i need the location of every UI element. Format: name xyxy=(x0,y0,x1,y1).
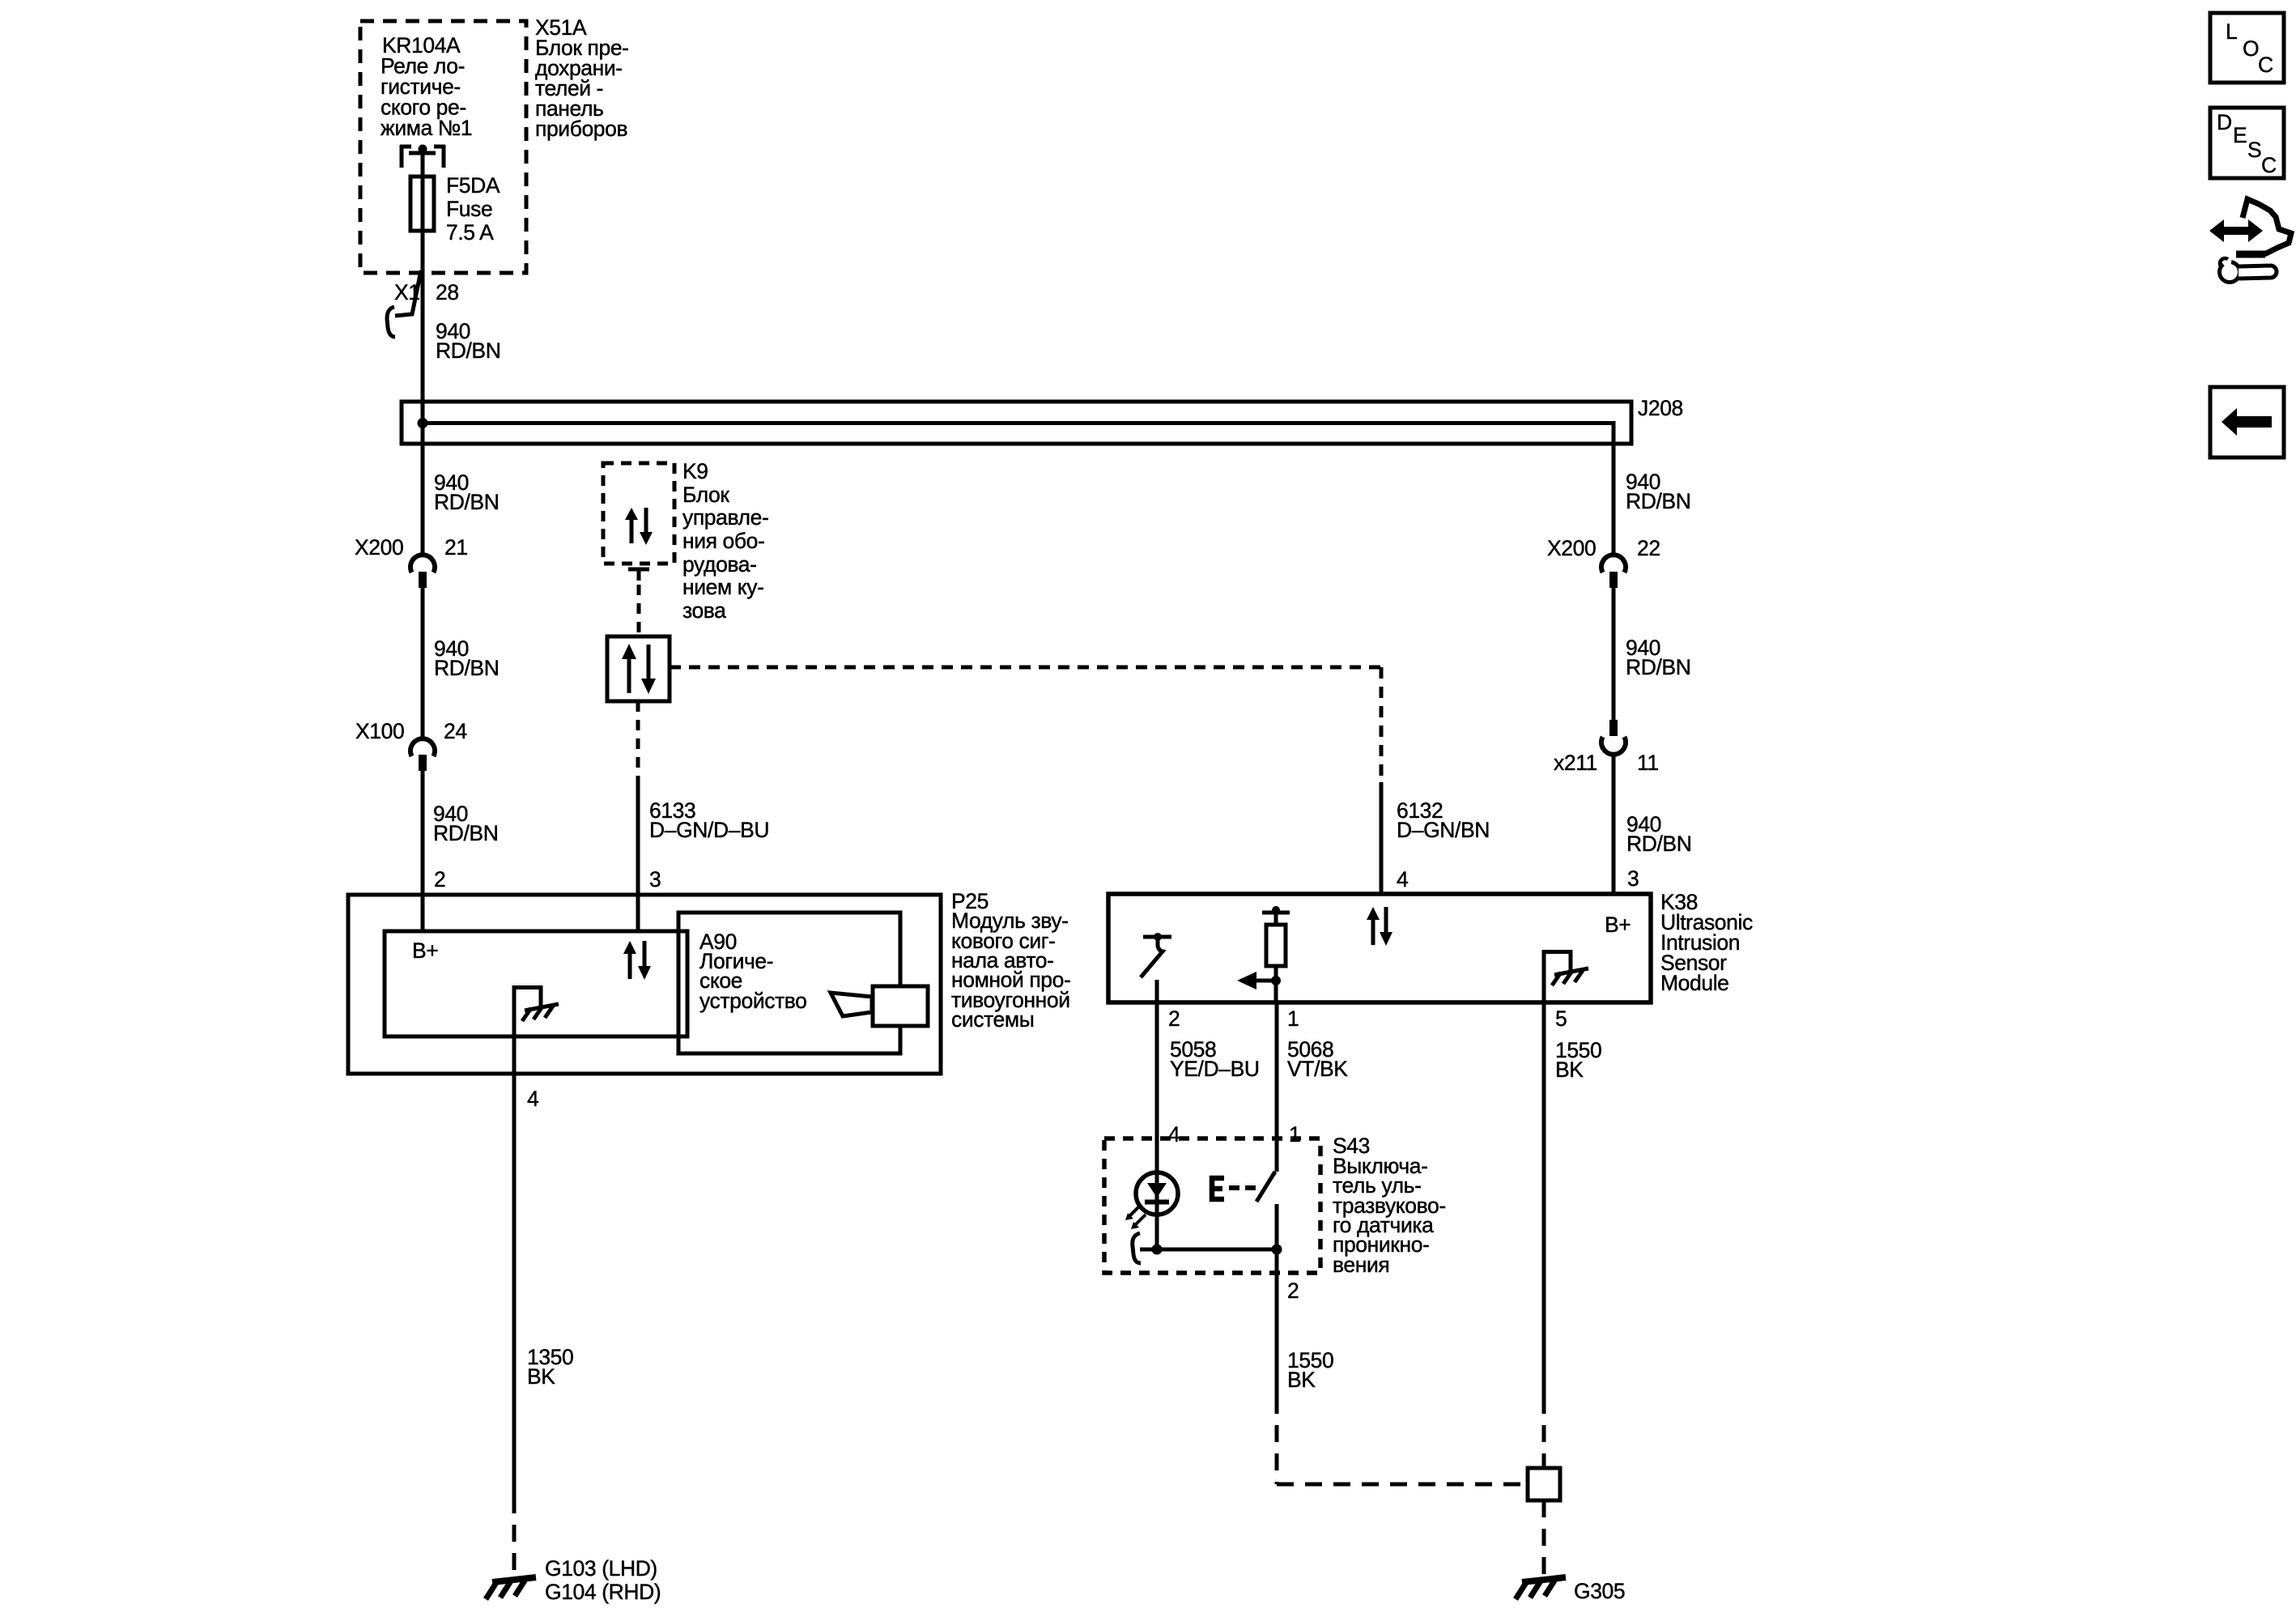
svg-text:O: O xyxy=(2243,36,2259,61)
svg-text:E: E xyxy=(2233,123,2247,147)
svg-text:4: 4 xyxy=(1397,867,1408,891)
svg-text:системы: системы xyxy=(951,1007,1034,1032)
svg-text:нием ку-: нием ку- xyxy=(682,575,764,599)
svg-text:4: 4 xyxy=(1168,1122,1180,1147)
svg-text:G103 (LHD): G103 (LHD) xyxy=(545,1556,657,1581)
svg-text:x211: x211 xyxy=(1554,751,1597,775)
svg-text:RD/BN: RD/BN xyxy=(1626,655,1690,679)
svg-text:L: L xyxy=(2226,19,2237,44)
svg-text:RD/BN: RD/BN xyxy=(433,821,498,845)
svg-text:5: 5 xyxy=(1555,1006,1567,1031)
svg-text:B+: B+ xyxy=(1605,913,1631,937)
svg-text:X100: X100 xyxy=(355,719,404,743)
svg-text:BK: BK xyxy=(1287,1368,1316,1392)
svg-text:22: 22 xyxy=(1637,536,1660,560)
svg-text:X200: X200 xyxy=(1547,536,1596,560)
svg-text:C: C xyxy=(2258,53,2273,77)
svg-text:1: 1 xyxy=(1287,1006,1299,1031)
svg-text:4: 4 xyxy=(527,1087,538,1111)
svg-text:D–GN/D–BU: D–GN/D–BU xyxy=(649,818,769,842)
svg-text:BK: BK xyxy=(1555,1057,1584,1082)
svg-text:ния обо-: ния обо- xyxy=(682,529,764,553)
svg-text:G305: G305 xyxy=(1574,1579,1625,1603)
svg-text:жима №1: жима №1 xyxy=(381,116,472,140)
svg-text:F5DA: F5DA xyxy=(446,173,500,198)
svg-text:Fuse: Fuse xyxy=(446,197,492,221)
svg-text:28: 28 xyxy=(436,280,459,304)
svg-text:3: 3 xyxy=(1627,866,1639,891)
svg-text:BK: BK xyxy=(527,1364,555,1389)
svg-text:RD/BN: RD/BN xyxy=(434,656,499,680)
svg-text:21: 21 xyxy=(444,535,468,560)
svg-text:RD/BN: RD/BN xyxy=(434,490,499,514)
svg-text:управле-: управле- xyxy=(682,505,768,530)
svg-text:B+: B+ xyxy=(412,938,438,963)
svg-text:1: 1 xyxy=(1289,1122,1300,1147)
svg-text:D: D xyxy=(2217,110,2232,134)
svg-text:VT/BK: VT/BK xyxy=(1287,1057,1348,1081)
svg-text:X200: X200 xyxy=(355,535,403,560)
svg-text:24: 24 xyxy=(444,719,467,743)
svg-text:3: 3 xyxy=(649,867,661,891)
svg-text:рудова-: рудова- xyxy=(682,552,757,577)
svg-text:RD/BN: RD/BN xyxy=(436,338,500,363)
svg-text:2: 2 xyxy=(1287,1279,1299,1303)
svg-text:RD/BN: RD/BN xyxy=(1626,832,1691,856)
svg-text:YE/D–BU: YE/D–BU xyxy=(1170,1057,1260,1081)
svg-text:RD/BN: RD/BN xyxy=(1626,489,1690,513)
svg-text:зова: зова xyxy=(682,598,726,623)
svg-text:J208: J208 xyxy=(1638,396,1683,420)
svg-text:устройство: устройство xyxy=(699,989,807,1013)
svg-text:S: S xyxy=(2247,138,2261,162)
svg-text:2: 2 xyxy=(1168,1006,1180,1031)
svg-text:D–GN/BN: D–GN/BN xyxy=(1397,818,1490,842)
svg-text:приборов: приборов xyxy=(535,117,627,141)
svg-text:G104 (RHD): G104 (RHD) xyxy=(545,1580,661,1604)
svg-text:11: 11 xyxy=(1637,751,1659,775)
svg-text:вения: вения xyxy=(1333,1253,1389,1277)
svg-text:7.5 A: 7.5 A xyxy=(446,220,494,245)
svg-text:Module: Module xyxy=(1660,971,1729,995)
svg-text:Блок: Блок xyxy=(682,483,729,507)
svg-text:K9: K9 xyxy=(682,459,708,483)
svg-text:C: C xyxy=(2261,153,2277,177)
svg-text:2: 2 xyxy=(434,867,445,891)
